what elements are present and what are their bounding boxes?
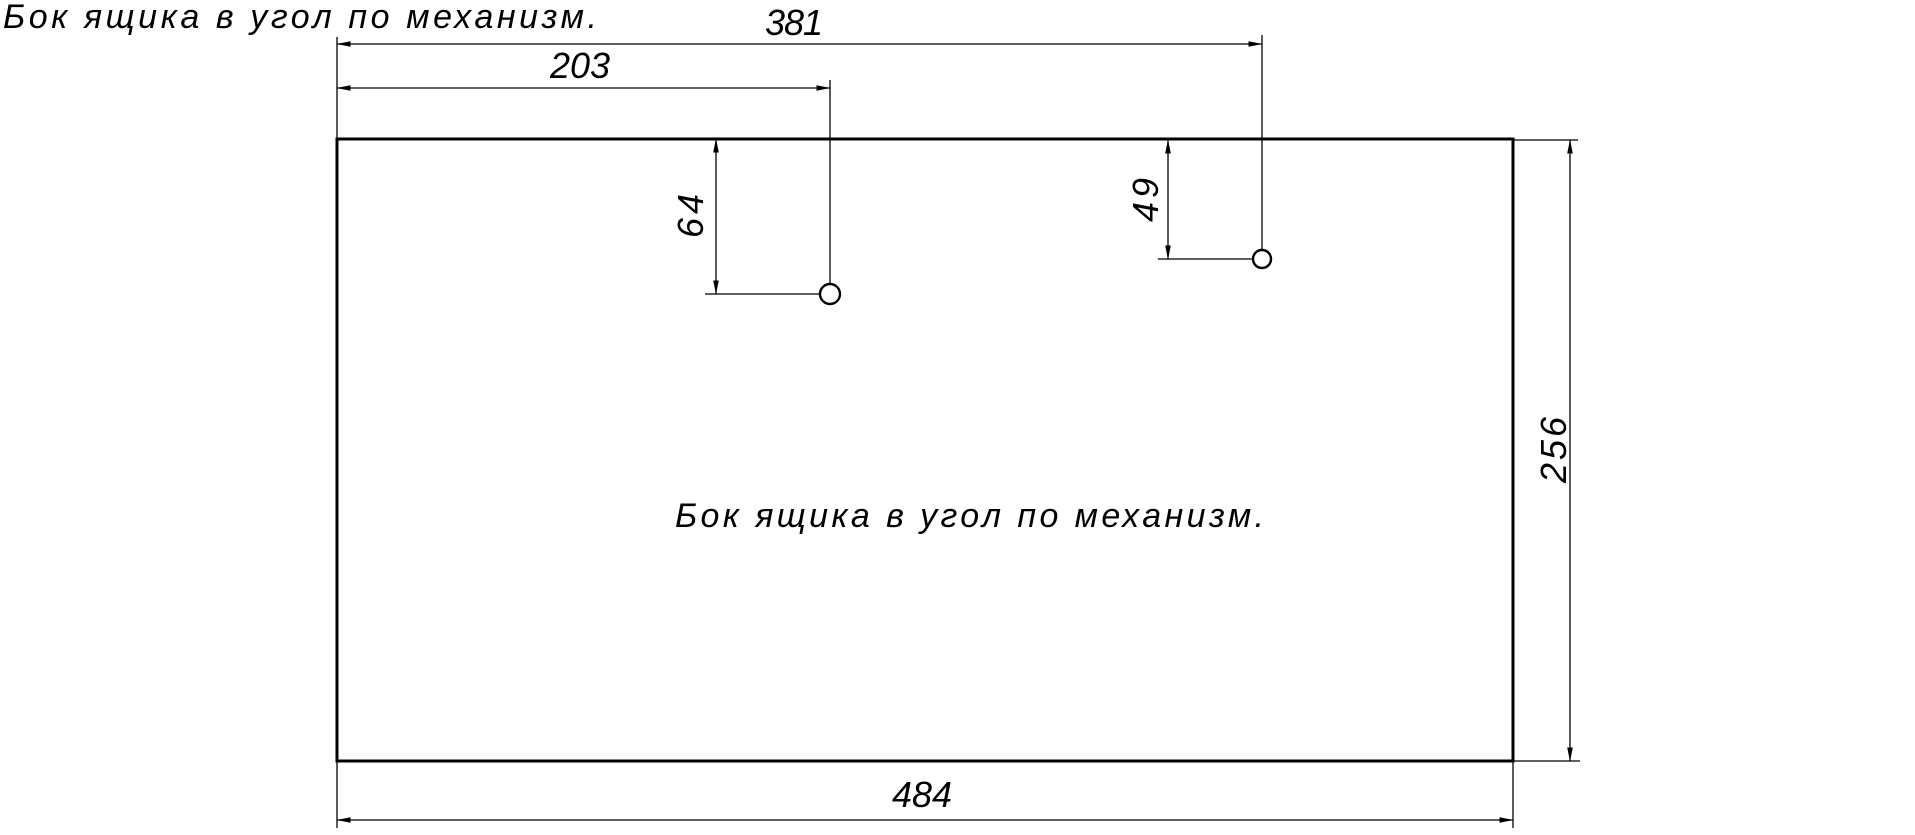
panel-outline bbox=[337, 139, 1513, 761]
cad-drawing-canvas: Бок ящика в угол по механизм. 381 203 64… bbox=[0, 0, 1915, 835]
dimension-text-49: 49 bbox=[1125, 178, 1166, 222]
dimension-text-203: 203 bbox=[549, 45, 610, 86]
drawing-page: Бок ящика в угол по механизм. 381 203 64… bbox=[0, 0, 1915, 835]
dimension-text-484: 484 bbox=[892, 774, 952, 815]
dimension-text-256: 256 bbox=[1533, 416, 1574, 484]
dimension-text-381: 381 bbox=[765, 2, 823, 43]
dimension-text-64: 64 bbox=[670, 194, 711, 238]
part-label: Бок ящика в угол по механизм. bbox=[675, 497, 1264, 535]
hole-1 bbox=[820, 284, 840, 304]
page-title: Бок ящика в угол по механизм. bbox=[3, 0, 597, 36]
hole-2 bbox=[1253, 250, 1271, 268]
